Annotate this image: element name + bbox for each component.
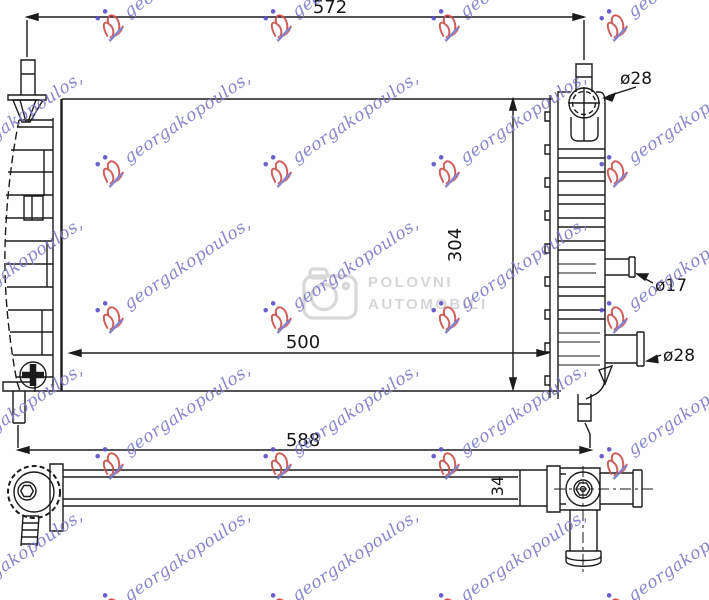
drain-plug: [20, 362, 46, 388]
bottom-view-left-fitting: [8, 464, 63, 546]
leader-lower-pipe-diameter: [647, 355, 661, 363]
label-top-width: 572: [313, 0, 347, 18]
lower-outlet-pipe: [605, 332, 644, 366]
front-view: [3, 20, 644, 448]
leader-small-pipe-diameter: [637, 274, 653, 283]
label-core-height: 304: [445, 228, 466, 262]
right-tank: [545, 91, 605, 399]
filler-neck: [568, 87, 600, 141]
small-outlet-pipe: [605, 257, 635, 277]
label-bottom-width: 588: [286, 430, 320, 451]
label-core-thickness: 34: [488, 476, 507, 496]
dimension-top-width: [27, 14, 584, 20]
top-right-mount-pin: [576, 20, 592, 92]
label-filler-diameter: ø28: [620, 69, 652, 89]
top-left-mount-pin: [8, 20, 46, 122]
label-core-width: 500: [286, 332, 320, 353]
dimension-core-height: [510, 99, 516, 389]
radiator-technical-drawing: 572 304 500 588 ø28 ø17 ø28 34: [0, 0, 709, 600]
bottom-right-mount-pin: [578, 366, 612, 448]
bottom-view: [8, 464, 655, 572]
radiator-diagram-page: POLOVNI AUTOMOBILI: [0, 0, 709, 600]
leader-filler-diameter: [604, 87, 636, 101]
left-tank: [5, 99, 61, 391]
label-lower-pipe-diameter: ø28: [663, 346, 695, 366]
bottom-view-right-fitting: [547, 466, 655, 572]
label-small-pipe-diameter: ø17: [655, 276, 687, 296]
